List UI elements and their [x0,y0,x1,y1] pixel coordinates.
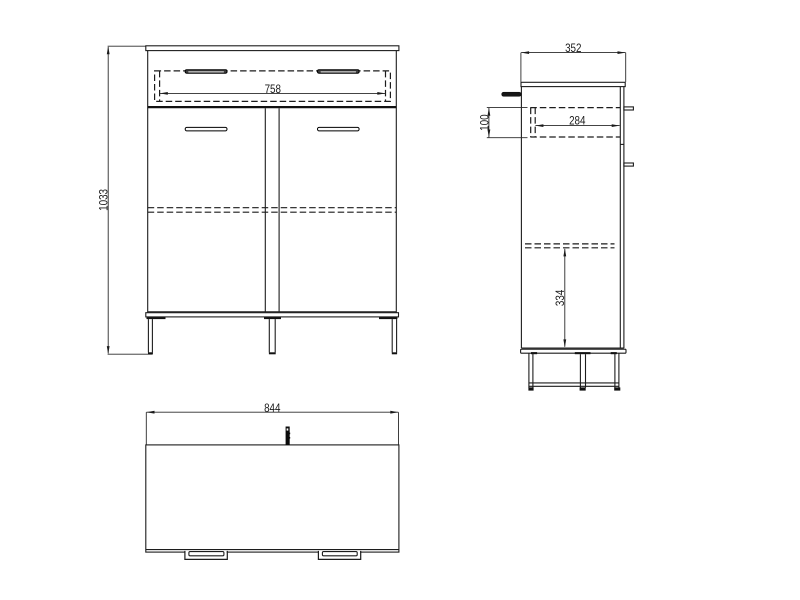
svg-text:334: 334 [553,289,567,306]
svg-text:1033: 1033 [97,189,111,211]
svg-text:758: 758 [265,82,282,96]
svg-text:284: 284 [569,114,586,128]
svg-text:352: 352 [565,41,582,55]
svg-text:844: 844 [264,401,281,415]
svg-text:100: 100 [477,114,491,131]
